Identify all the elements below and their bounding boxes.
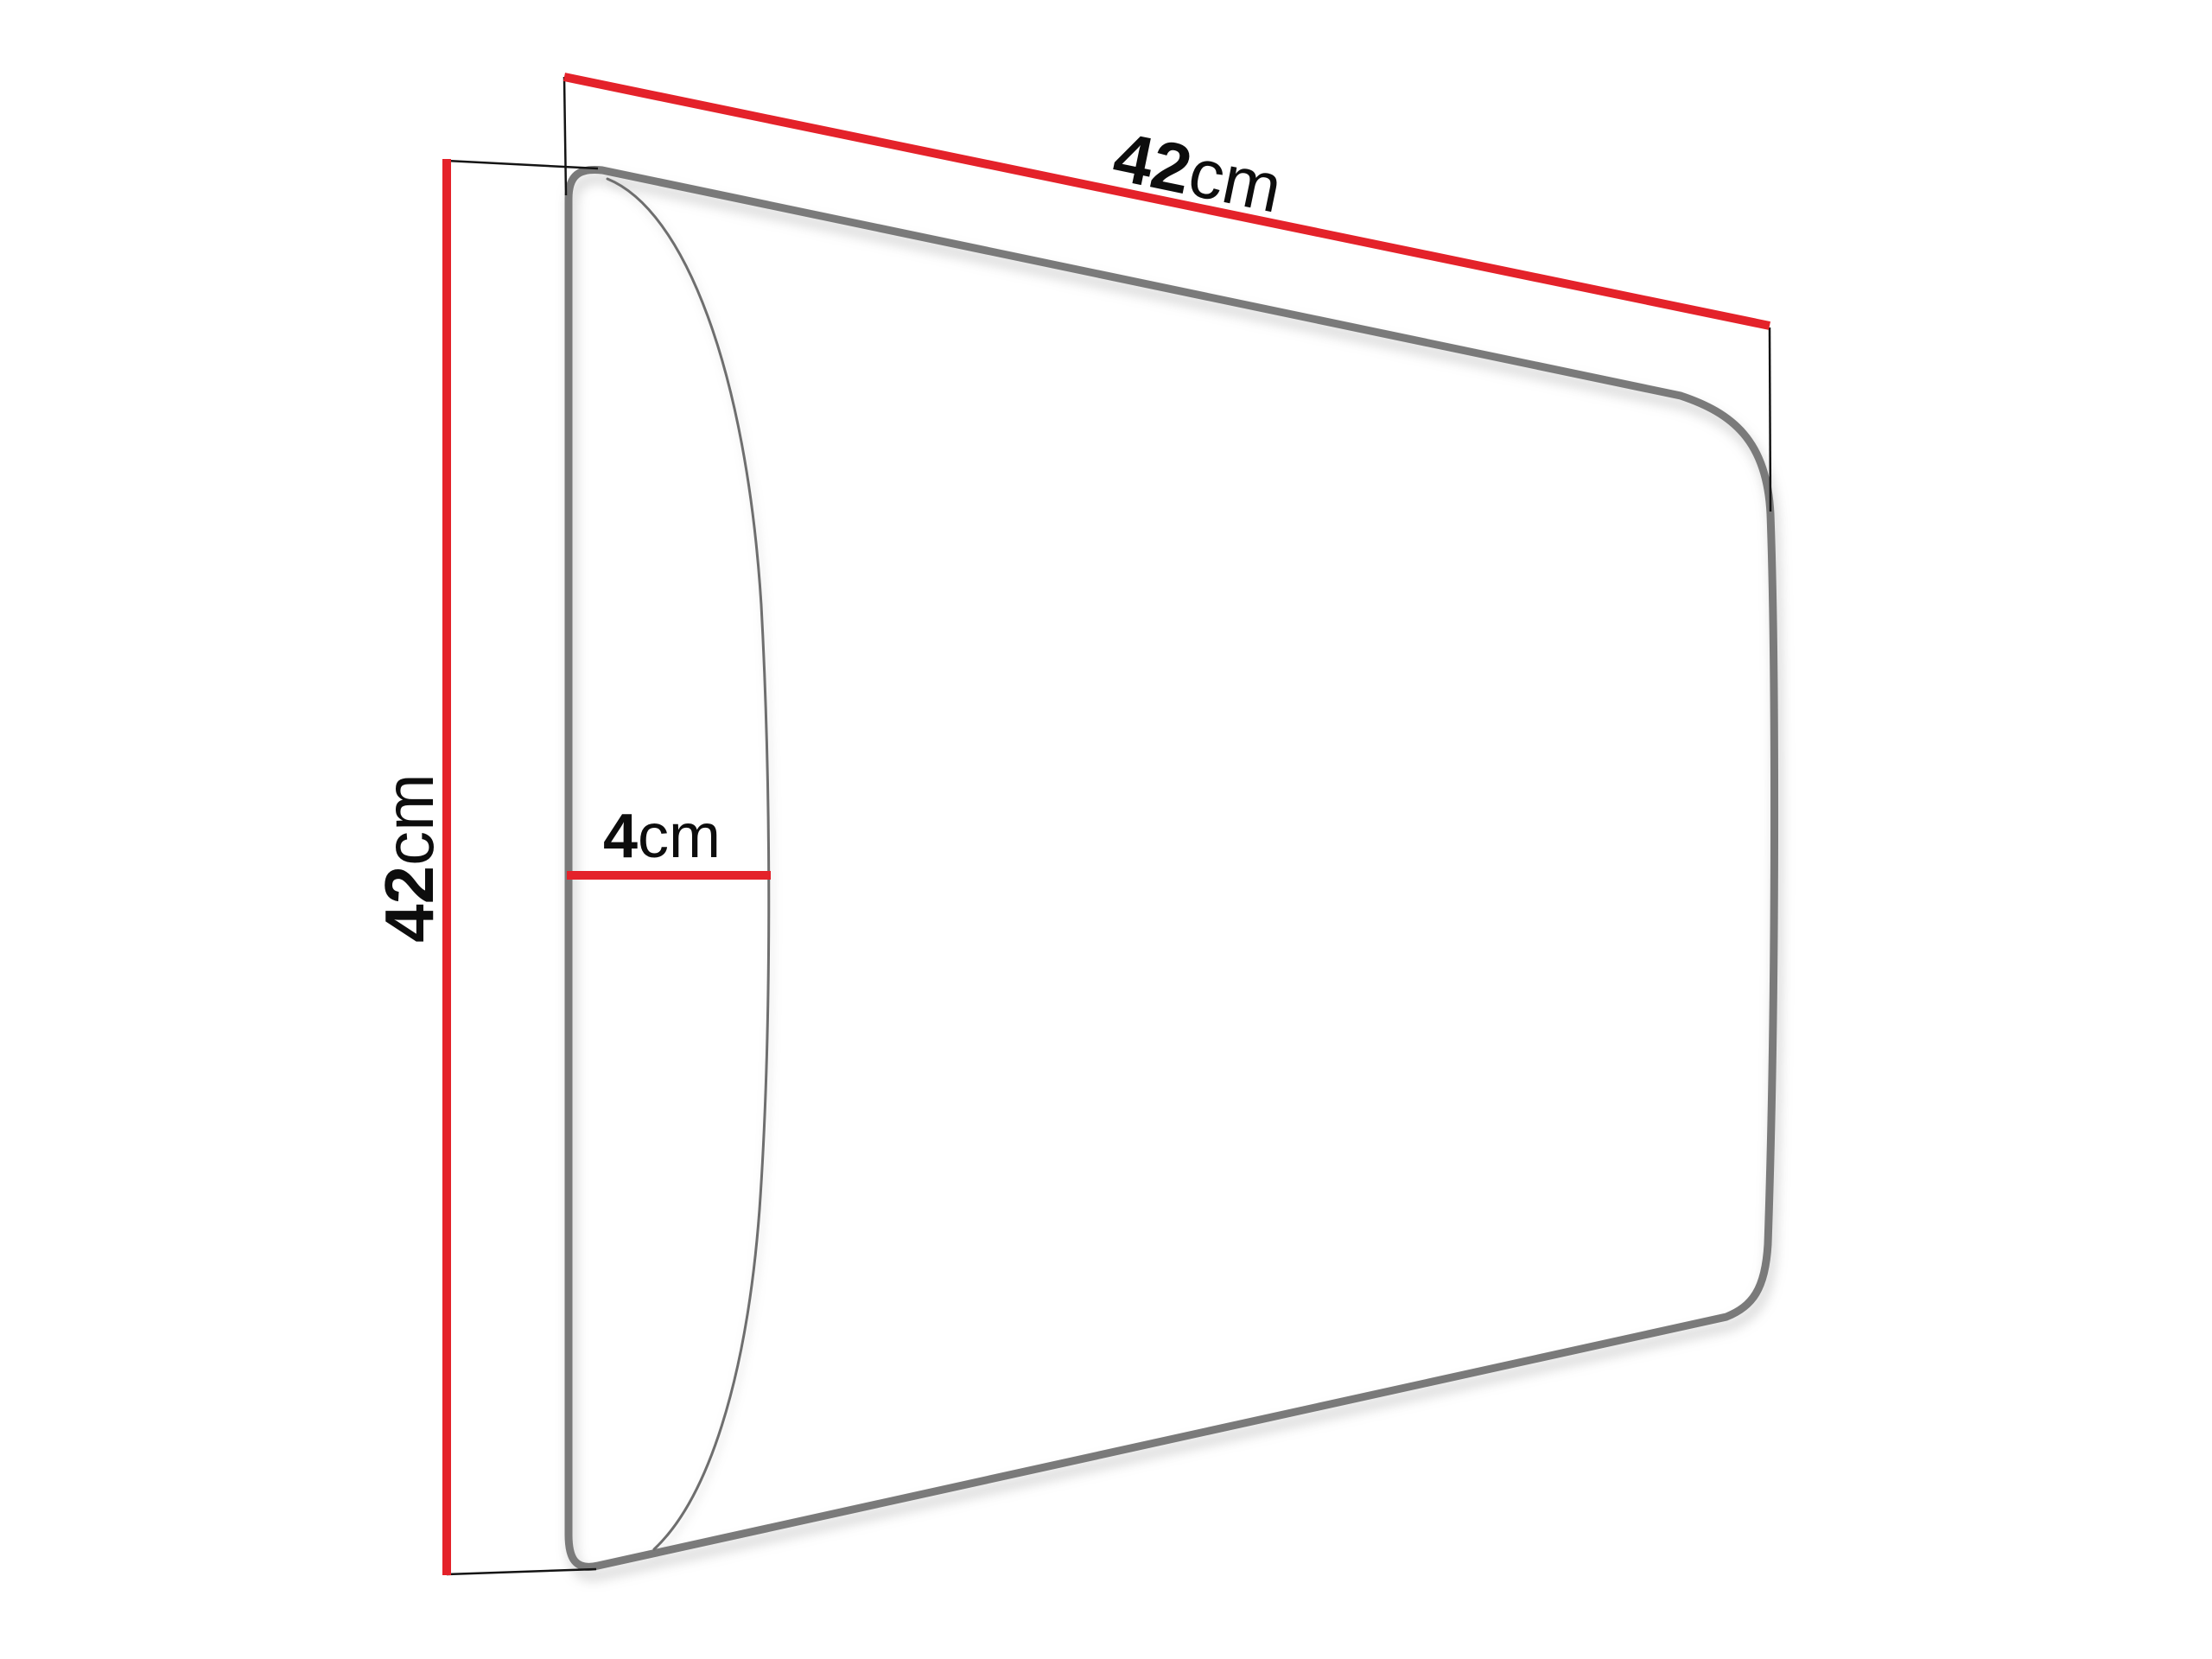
panel-outline	[569, 169, 1775, 1567]
height-value: 42	[371, 866, 448, 943]
depth-dimension-label: 4cm	[603, 805, 721, 868]
diagram-drawing	[0, 0, 2212, 1659]
width-extension-line-right	[1770, 327, 1770, 512]
height-unit: cm	[371, 773, 448, 866]
height-extension-line-top	[447, 161, 598, 168]
width-extension-line-left	[564, 77, 566, 195]
height-dimension-label: 42cm	[375, 773, 444, 943]
height-extension-line-bottom	[447, 1569, 596, 1574]
dimension-diagram: 42cm 42cm 4cm	[0, 0, 2212, 1659]
depth-value: 4	[603, 802, 638, 871]
depth-unit: cm	[638, 802, 721, 871]
